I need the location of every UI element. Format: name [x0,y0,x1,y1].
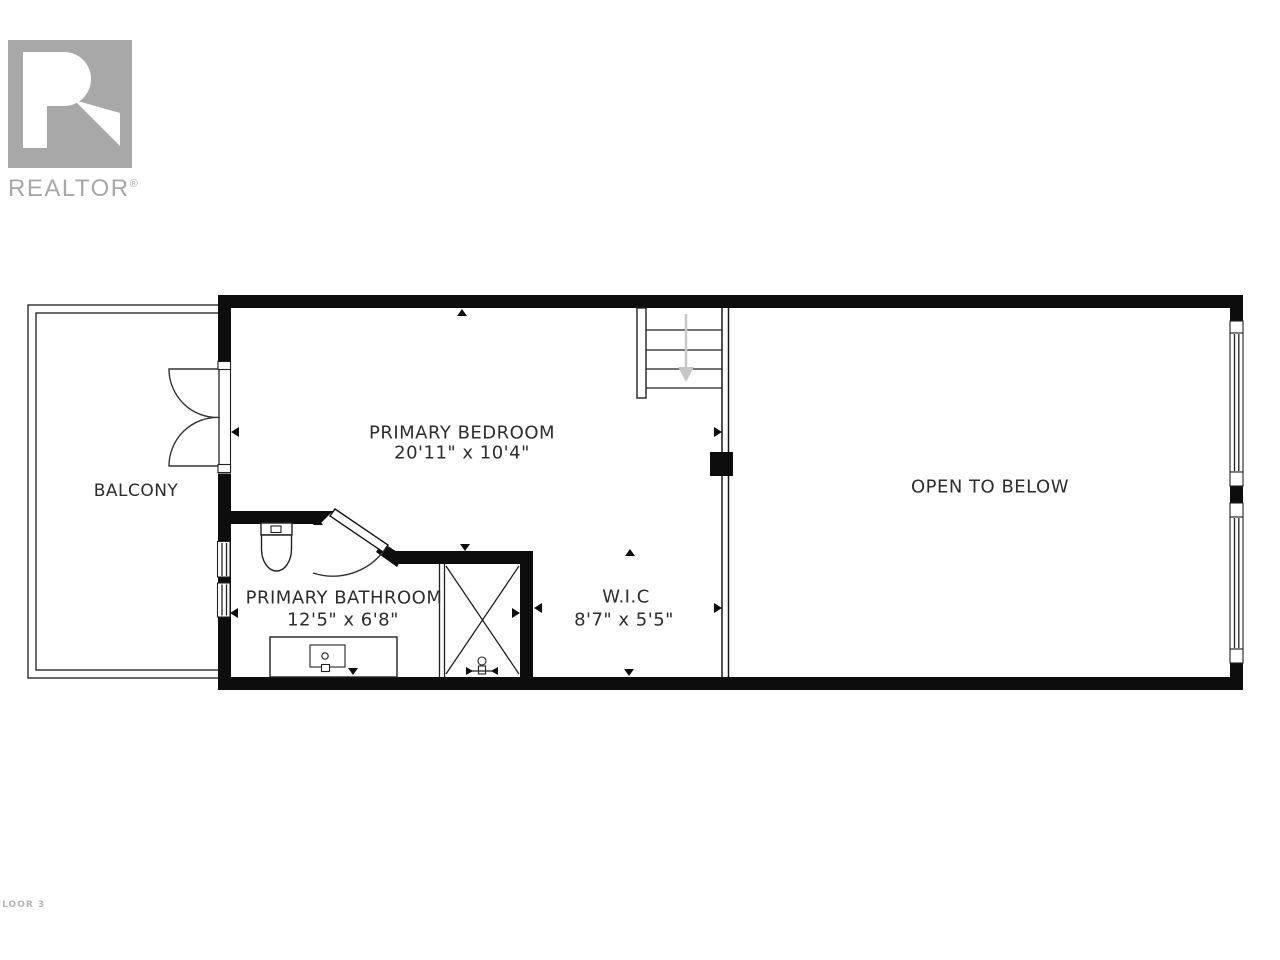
vanity-icon [270,637,397,677]
partition-wall [710,308,733,677]
balcony-label: BALCONY [94,481,179,501]
open-to-below-label: OPEN TO BELOW [911,477,1069,498]
stairs [637,308,722,398]
toilet-icon [261,523,292,571]
wic-label: W.I.C [602,587,650,608]
shower-fixture-icon [466,657,498,675]
balcony-french-doors [169,361,233,474]
bedroom-dimensions: 20'11" x 10'4" [394,443,530,464]
wic-dimensions: 8'7" x 5'5" [574,610,674,631]
exterior-walls [218,295,1243,690]
bedroom-label: PRIMARY BEDROOM [369,423,555,444]
bathroom-label: PRIMARY BATHROOM [246,588,443,609]
bathroom-dimensions: 12'5" x 6'8" [287,610,399,631]
shower [440,564,520,677]
floorplan-page: REALTOR® [0,0,1280,960]
floor-number-label: FLOOR 3 [0,900,45,910]
stairs-down-arrow-icon [678,314,694,382]
floor-plan-drawing [0,0,1280,960]
wall-post [710,452,733,476]
